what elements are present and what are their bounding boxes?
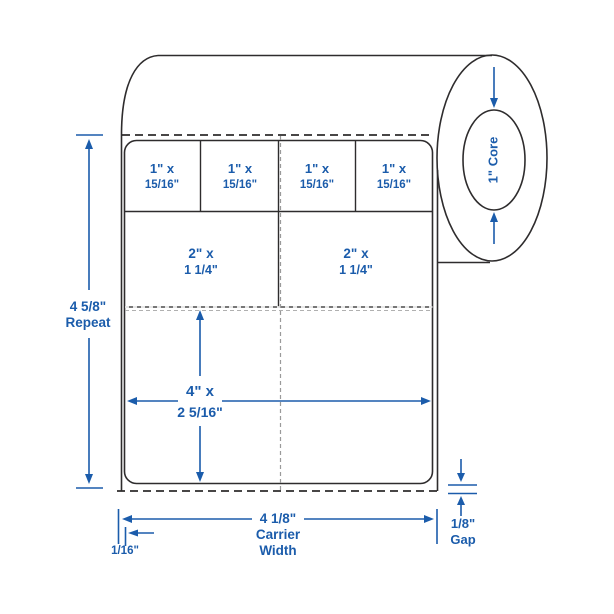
carrier-width-value: 4 1/8": [256, 511, 300, 527]
label-roll-diagram: 1" x 15/16" 1" x 15/16" 1" x 15/16" 1" x…: [0, 0, 614, 614]
dimension-gap: [448, 459, 477, 516]
left-margin-value: 1/16": [111, 544, 139, 558]
label-small-3-size2: 15/16": [300, 177, 334, 194]
repeat-label: Repeat: [65, 315, 110, 331]
label-large: 4" x 2 5/16": [177, 382, 223, 422]
label-small-2-size2: 15/16": [223, 177, 257, 194]
label-small-1: 1" x 15/16": [145, 161, 179, 194]
label-small-1-size: 1" x: [145, 161, 179, 177]
cross-arrowhead-up: [196, 310, 204, 320]
label-small-2: 1" x 15/16": [223, 161, 257, 194]
cross-arrowhead-down: [196, 472, 204, 482]
cross-arrowhead-right: [421, 397, 431, 405]
label-small-3: 1" x 15/16": [300, 161, 334, 194]
carrier-arrowhead-right: [424, 515, 434, 523]
carrier-arrowhead-left: [122, 515, 132, 523]
gap-dimension-text: 1/8" Gap: [450, 516, 475, 548]
gap-value: 1/8": [450, 516, 475, 532]
label-medium-1: 2" x 1 1/4": [184, 245, 218, 279]
repeat-arrowhead-up: [85, 139, 93, 149]
gap-arrowhead-down: [457, 473, 465, 482]
cross-arrowhead-left: [127, 397, 137, 405]
label-medium-2-size: 2" x: [339, 245, 373, 262]
gap-label: Gap: [450, 532, 475, 548]
label-medium-2-size2: 1 1/4": [339, 262, 373, 279]
repeat-dimension-text: 4 5/8" Repeat: [65, 299, 110, 331]
carrier-width-label1: Carrier: [256, 527, 300, 543]
carrier-width-label2: Width: [256, 543, 300, 559]
label-large-size2: 2 5/16": [177, 402, 223, 422]
label-small-4-size: 1" x: [377, 161, 411, 177]
left-margin-arrowhead: [128, 530, 138, 537]
label-small-4-size2: 15/16": [377, 177, 411, 194]
roll-left-curve: [122, 56, 159, 136]
label-small-3-size: 1" x: [300, 161, 334, 177]
label-large-size: 4" x: [177, 382, 223, 402]
label-small-4: 1" x 15/16": [377, 161, 411, 194]
label-small-1-size2: 15/16": [145, 177, 179, 194]
left-margin-dimension-text: 1/16": [111, 544, 139, 558]
label-medium-1-size: 2" x: [184, 245, 218, 262]
label-small-2-size: 1" x: [223, 161, 257, 177]
label-medium-2: 2" x 1 1/4": [339, 245, 373, 279]
repeat-arrowhead-down: [85, 474, 93, 484]
label-medium-1-size2: 1 1/4": [184, 262, 218, 279]
gap-arrowhead-up: [457, 496, 465, 505]
repeat-value: 4 5/8": [65, 299, 110, 315]
core-size-label: 1" Core: [486, 137, 501, 184]
carrier-width-dimension-text: 4 1/8" Carrier Width: [256, 511, 300, 559]
